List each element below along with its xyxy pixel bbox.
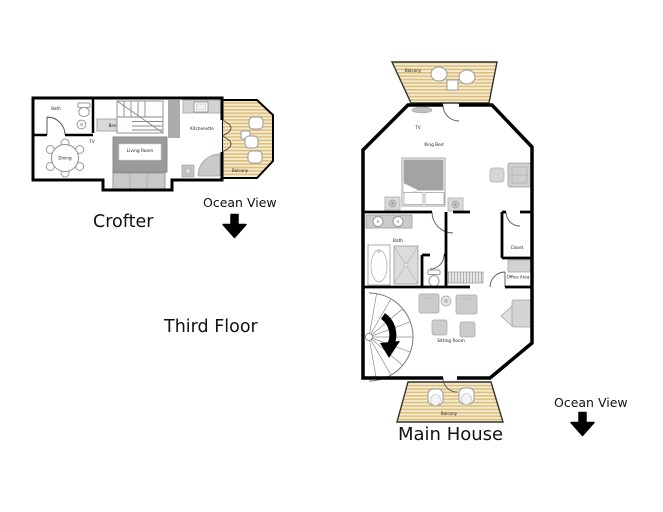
balcony-chair <box>431 67 447 81</box>
room-label-king-bed: King Bed <box>424 142 443 148</box>
bath-sink <box>77 120 86 129</box>
media-wall <box>168 100 180 138</box>
ottoman <box>432 320 447 335</box>
down-arrow-icon <box>221 213 248 239</box>
room-label-dining: Dining <box>58 156 72 161</box>
balcony-chair <box>248 151 262 163</box>
room-label-balcony-top: Balcony <box>405 68 422 73</box>
floorplan-page: Balcony Bench Kitchenette <box>0 0 663 512</box>
shower <box>394 246 418 284</box>
room-label-main-bath: Bath <box>393 238 403 244</box>
balcony-chair <box>249 117 263 129</box>
room-label-closet: Closet <box>511 245 524 250</box>
ottoman <box>490 168 504 182</box>
nightstand <box>385 197 400 210</box>
balcony-chair <box>245 136 258 148</box>
room-label-tv: TV <box>414 125 421 130</box>
office-desk <box>508 260 532 272</box>
living-room-sofa <box>113 137 167 189</box>
main-house-title: Main House <box>398 424 503 445</box>
nightstand <box>448 198 463 211</box>
balcony-chair <box>459 70 475 84</box>
side-table <box>182 165 194 177</box>
balcony-table <box>447 80 458 90</box>
armchair <box>456 295 477 314</box>
room-label-crofter-tv: TV <box>88 139 95 144</box>
armchair <box>508 163 531 187</box>
room-label-sitting-room: Sitting Room <box>437 338 465 344</box>
room-label-balcony-bottom: Balcony <box>441 411 458 416</box>
room-label-crofter-balcony: Balcony <box>232 168 249 173</box>
pillow <box>425 193 444 205</box>
dresser <box>447 272 483 283</box>
crofter-balcony: Balcony <box>222 100 273 178</box>
down-arrow-icon <box>569 411 596 437</box>
ottoman <box>460 322 475 337</box>
ocean-view-label-left: Ocean View <box>203 195 277 210</box>
toilet <box>428 270 440 287</box>
kitchenette-counter <box>183 100 221 113</box>
bathtub <box>368 245 390 285</box>
ocean-view-label-right: Ocean View <box>554 395 628 410</box>
king-bed <box>402 158 445 206</box>
main-house-top-balcony: Balcony <box>392 62 497 103</box>
pillow <box>404 193 423 205</box>
main-house-bottom-balcony: Balcony <box>397 382 503 422</box>
room-label-crofter-bath: Bath <box>51 106 61 111</box>
main-house-floorplan: Balcony Balcony TV King Bed <box>355 55 550 435</box>
crofter-title: Crofter <box>93 212 153 232</box>
tv <box>412 107 432 113</box>
toilet <box>78 103 90 117</box>
stairs <box>117 101 163 133</box>
crofter-floorplan: Balcony Bench Kitchenette <box>28 92 278 200</box>
room-label-kitchenette: Kitchenette <box>190 126 214 131</box>
vanity <box>366 215 412 228</box>
room-label-living-room: Living Room <box>127 148 153 154</box>
armchair <box>419 294 439 313</box>
third-floor-title: Third Floor <box>164 317 258 337</box>
room-label-office-area: Office Area <box>507 275 530 280</box>
